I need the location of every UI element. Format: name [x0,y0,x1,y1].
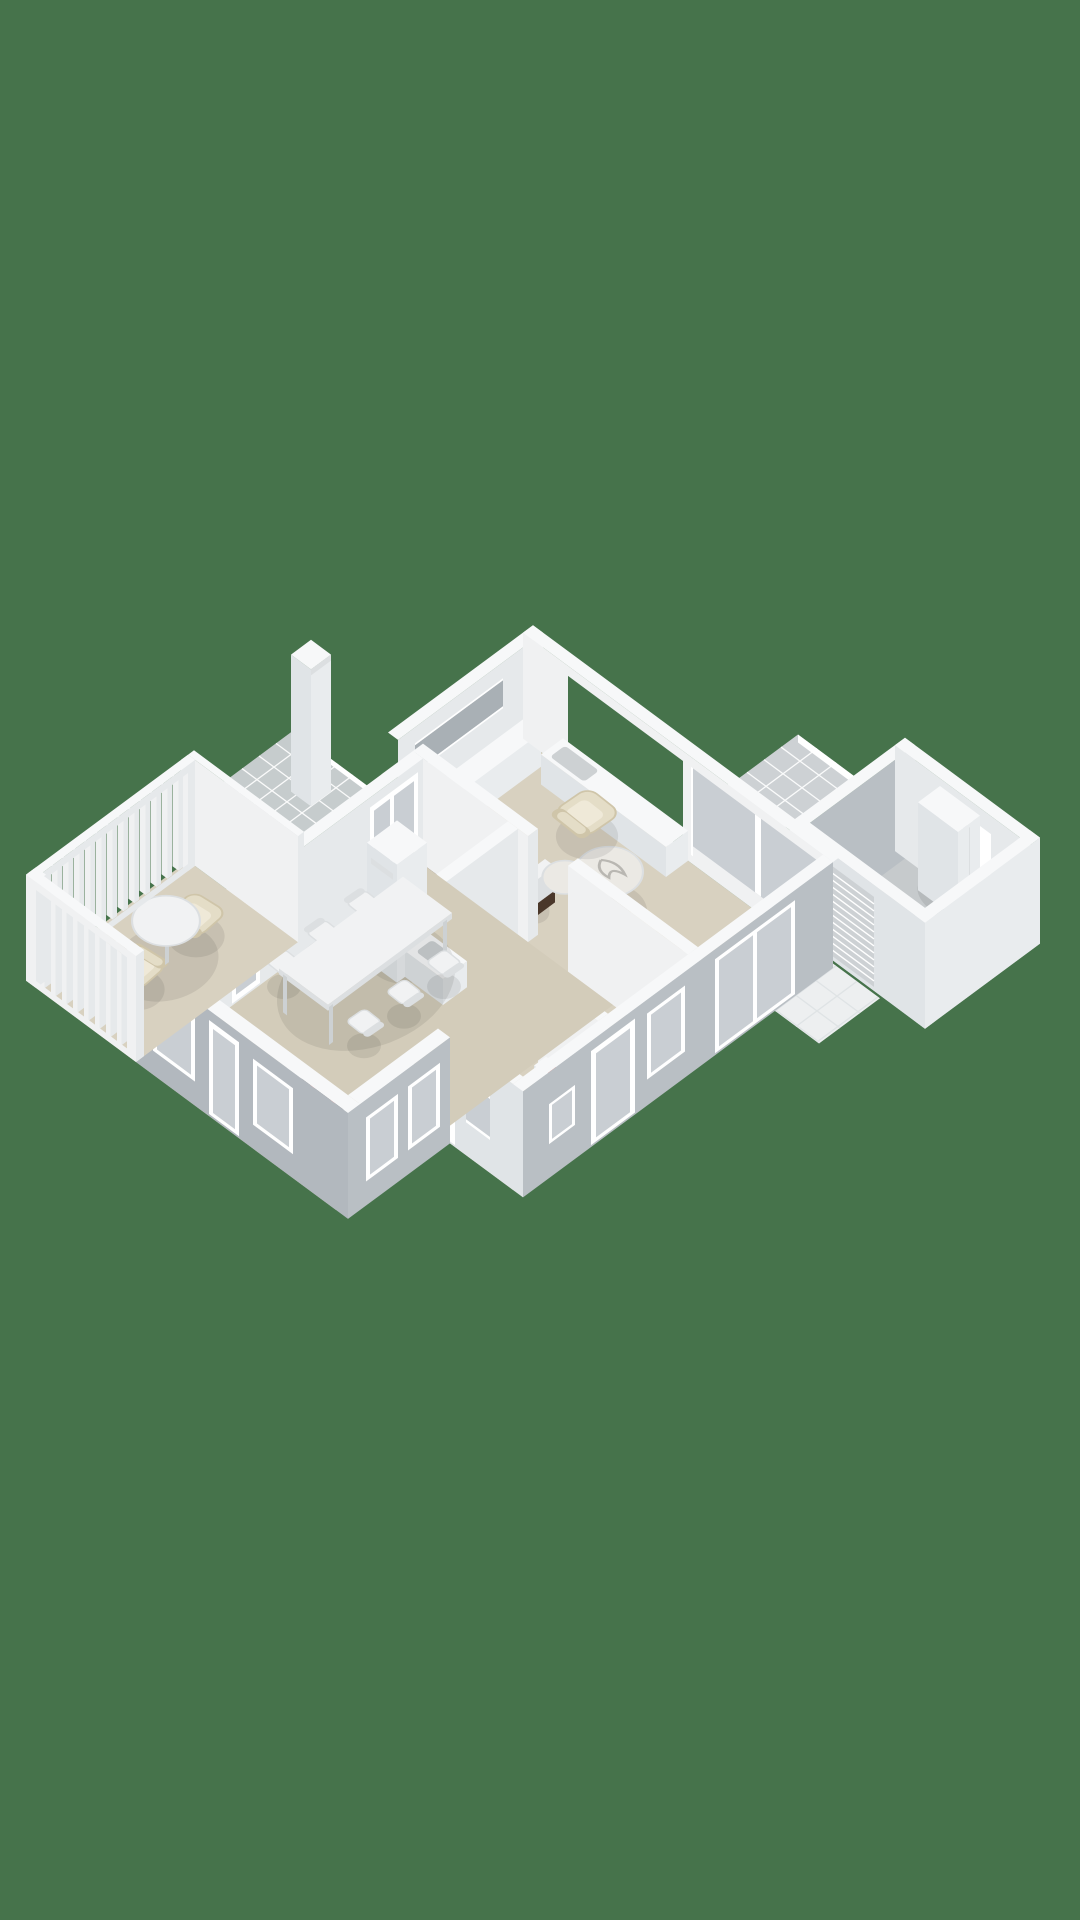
chimney [291,640,331,807]
floorplan-3d-render [0,0,1080,1920]
floorplan-stage [0,0,1080,1920]
